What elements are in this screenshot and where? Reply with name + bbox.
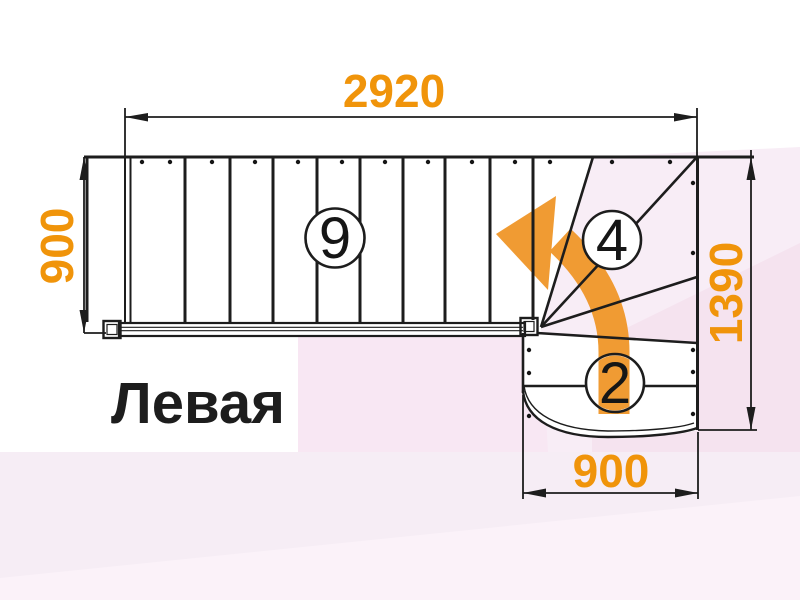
dimension-top-value: 2920 — [343, 65, 445, 117]
dimension-bottom-value: 900 — [573, 445, 650, 497]
dimension-left-value: 900 — [31, 208, 83, 285]
stair-plan-svg: 9 4 2 2920 900 1390 900 Левая — [0, 0, 800, 600]
background-pink-rect — [298, 335, 548, 452]
dimension-right-value: 1390 — [700, 242, 752, 344]
stair-plan-drawing: 9 4 2 2920 900 1390 900 Левая — [0, 0, 800, 600]
winder-count: 4 — [596, 208, 628, 273]
orientation-label: Левая — [111, 371, 285, 436]
upper-flight-count: 9 — [319, 206, 351, 271]
lower-flight-count: 2 — [599, 351, 631, 416]
